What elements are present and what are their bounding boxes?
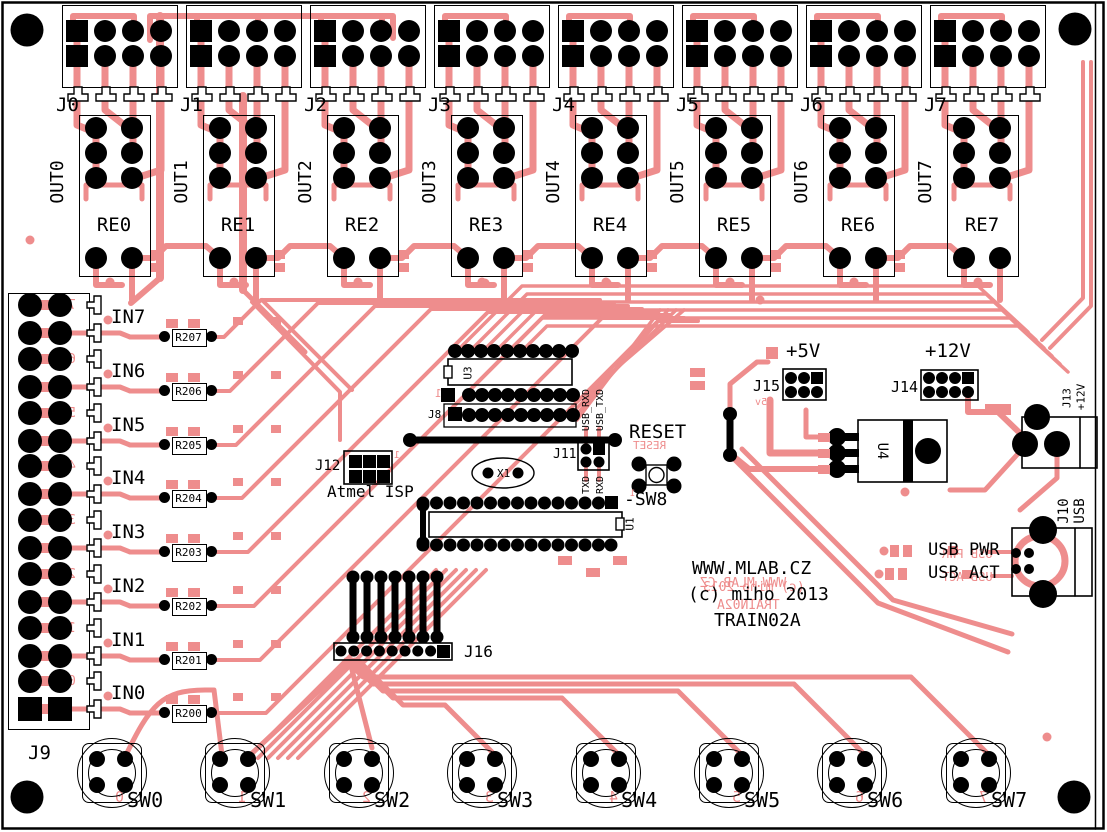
input-channel: 5 IN5 R205 [0,401,230,461]
resistor-label: R204 [172,493,205,504]
connector-pin-icon [86,671,103,692]
switch-label: SW6 [867,790,903,810]
pushbutton-switch: 4 SW4 [565,732,685,822]
output-net-label: OUT5 [669,160,687,203]
relay-label: RE2 [327,216,397,235]
connector-pin-icon [86,484,103,505]
j11-usb-rxd-label: USB_RXD [582,389,592,431]
connector-pin-icon [86,323,103,344]
usb-act-label: USB ACT [928,565,1000,582]
j11-label: J11 [553,448,576,461]
output-net-label: OUT2 [297,160,315,203]
terminal-pin-icon [591,86,613,103]
terminal-pin-icon [95,86,117,103]
output-channel: J2 OUT2 RE2 [310,0,424,280]
switch-label: SW2 [374,790,410,810]
title-copyright: (c) miho 2013 [688,586,829,604]
pushbutton-switch: 7 SW7 [935,732,1055,822]
terminal-pin-icon [123,86,145,103]
title-site: WWW.MLAB.CZ [692,560,811,578]
resistor-label: R206 [172,386,205,397]
connector-pin-icon [86,403,103,424]
output-net-label: OUT1 [173,160,191,203]
usb-type-label: USB [1073,498,1087,523]
pushbutton-switch: 2 SW2 [318,732,438,822]
j12-pin1-mark: 1 [394,451,400,461]
output-net-label: OUT0 [49,160,67,203]
input-channel: 1 IN1 R201 [0,616,230,676]
output-channel: J3 OUT3 RE3 [434,0,548,280]
input-net-label: IN3 [111,523,145,542]
j16-label: J16 [464,644,493,660]
j15-label: J15 [753,379,780,394]
output-connector-label: J6 [800,96,823,115]
terminal-pin-icon [771,86,793,103]
terminal-pin-icon [1019,86,1041,103]
x1-label: X1 [497,468,510,479]
j13-net-label: +12V [1076,384,1087,411]
switch-label: SW1 [250,790,286,810]
output-connector-label: J5 [676,96,699,115]
input-net-label: IN2 [111,577,145,596]
j11-rxd-label: RXD [596,476,606,494]
u3-label: U3 [463,366,474,379]
connector-pin-icon [86,456,103,477]
reset-label: RESET [629,423,686,442]
terminal-pin-icon [715,86,737,103]
terminal-pin-icon [867,86,889,103]
connector-pin-icon [86,510,103,531]
terminal-pin-icon [275,86,297,103]
terminal-pin-icon [343,86,365,103]
relay-label: RE4 [575,216,645,235]
j14-label: J14 [891,380,918,395]
output-connector-label: J2 [304,96,327,115]
terminal-pin-icon [895,86,917,103]
j8-label: J8 [428,409,441,420]
terminal-pin-icon [495,86,517,103]
input-channel: 0 IN0 R200 [0,669,230,729]
switch-label: SW4 [621,790,657,810]
input-channel: 3 IN3 R203 [0,508,230,568]
j11-txd-label: TXD [582,476,592,494]
terminal-pin-icon [219,86,241,103]
relay-label: RE0 [79,216,149,235]
connector-pin-icon [86,699,103,720]
input-channel: 6 IN6 R206 [0,347,230,407]
terminal-pin-icon [467,86,489,103]
switch-label: SW5 [744,790,780,810]
input-net-label: IN6 [111,362,145,381]
plus12v-label: +12V [925,342,971,361]
output-connector-label: J7 [924,96,947,115]
connector-pin-icon [86,646,103,667]
u4-label: U4 [875,443,889,460]
isp-caption: Atmel ISP [327,484,414,500]
terminal-pin-icon [151,86,173,103]
j13-label: J13 [1062,388,1073,408]
switch-label: SW0 [127,790,163,810]
resistor-label: R200 [172,708,205,719]
resistor-label: R202 [172,601,205,612]
sw8-label: -SW8 [624,491,667,509]
switch-label: SW3 [497,790,533,810]
title-boardname: TRAIN02A [714,612,801,630]
input-channel: 7 IN7 R207 [0,293,230,353]
terminal-pin-icon [839,86,861,103]
input-net-label: IN4 [111,469,145,488]
pushbutton-switch: 3 SW3 [441,732,561,822]
terminal-pin-icon [647,86,669,103]
connector-pin-icon [86,564,103,585]
output-channel: J0 OUT0 RE0 [62,0,176,280]
output-net-label: OUT4 [545,160,563,203]
output-connector-label: J1 [180,96,203,115]
relay-label: RE6 [823,216,893,235]
connector-pin-icon [86,377,103,398]
input-net-label: IN7 [111,308,145,327]
j12-label: J12 [315,459,340,473]
relay-label: RE7 [947,216,1017,235]
resistor-label: R201 [172,655,205,666]
pushbutton-switch: 5 SW5 [688,732,808,822]
u3-pin1-mark: 1 [435,388,442,399]
pushbutton-switch: 0 SW0 [71,732,191,822]
terminal-pin-icon [247,86,269,103]
terminal-pin-icon [991,86,1013,103]
resistor-label: R203 [172,547,205,558]
connector-pin-icon [86,349,103,370]
resistor-label: R207 [172,332,205,343]
u1-label: U1 [625,517,636,530]
input-channel: 4 IN4 R204 [0,454,230,514]
output-channel: J5 OUT5 RE5 [682,0,796,280]
pushbutton-switch: 1 SW1 [194,732,314,822]
output-net-label: OUT3 [421,160,439,203]
connector-pin-icon [86,295,103,316]
relay-label: RE3 [451,216,521,235]
terminal-pin-icon [743,86,765,103]
pushbutton-switch: 6 SW6 [811,732,931,822]
resistor-label: R205 [172,440,205,451]
terminal-pin-icon [523,86,545,103]
terminal-pin-icon [371,86,393,103]
input-net-label: IN0 [111,684,145,703]
input-channel: 2 IN2 R202 [0,562,230,622]
output-channel: J7 OUT7 RE7 [930,0,1044,280]
j11-usb-txd-label: USB_TXD [596,389,606,431]
connector-pin-icon [86,592,103,613]
j10-label: J10 [1057,498,1071,523]
output-net-label: OUT7 [917,160,935,203]
terminal-pin-icon [963,86,985,103]
connector-pin-icon [86,538,103,559]
output-channel: J1 OUT1 RE1 [186,0,300,280]
output-channel: J4 OUT4 RE4 [558,0,672,280]
connector-pin-icon [86,431,103,452]
usb-pwr-label: USB PWR [928,542,1000,559]
output-connector-label: J3 [428,96,451,115]
output-channel: J6 OUT6 RE6 [806,0,920,280]
input-net-label: IN5 [111,416,145,435]
terminal-pin-icon [399,86,421,103]
terminal-pin-icon [619,86,641,103]
input-net-label: IN1 [111,631,145,650]
switch-label: SW7 [991,790,1027,810]
pcb-board-plot: WWW.MLAB.CZ (c) miho 2013 TRAIN02A RESET… [0,0,1107,832]
connector-pin-icon [86,618,103,639]
output-connector-label: J0 [56,96,79,115]
relay-label: RE1 [203,216,273,235]
relay-label: RE5 [699,216,769,235]
output-connector-label: J4 [552,96,575,115]
plus5v-label: +5V [786,342,820,361]
mirror-text-5v: +5v [755,398,773,408]
j9-label: J9 [28,744,51,763]
output-net-label: OUT6 [793,160,811,203]
